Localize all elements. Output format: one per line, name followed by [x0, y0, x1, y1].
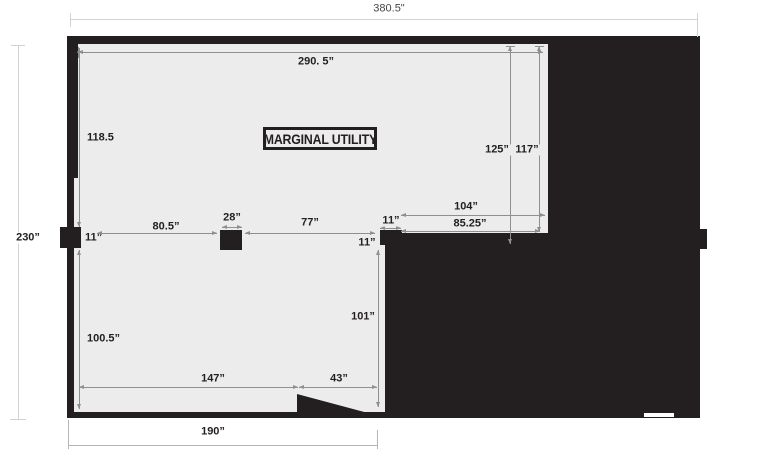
- dim-label-right-outer-height: 125”: [483, 145, 511, 156]
- dim-line-right-inner-height: [539, 46, 540, 232]
- room-fill-lower: [78, 233, 385, 412]
- dim-line-upper-left-height: [79, 48, 80, 227]
- dim-label-lower-right-height: 101”: [349, 312, 377, 323]
- dim-line-column-width: [222, 227, 242, 228]
- bottom-edge-notch: [644, 413, 674, 417]
- dim-tick-bottom-left: [68, 420, 69, 449]
- dim-label-overall-width: 380.5": [371, 4, 406, 15]
- dim-line-span-left: [97, 233, 217, 234]
- dim-tick-overall-left: [70, 13, 71, 27]
- dim-label-left-height: 230”: [14, 233, 42, 244]
- dim-tick-overall-right: [697, 13, 698, 37]
- dim-tick-height-bottom: [10, 419, 26, 420]
- dim-line-notch-width: [299, 387, 377, 388]
- corner-stub-wall: [380, 230, 402, 245]
- dim-label-column-width: 28”: [221, 213, 243, 224]
- dim-line-span-mid: [245, 233, 375, 234]
- dim-label-upper-left-height: 118.5: [85, 133, 116, 144]
- center-column-post: [220, 230, 242, 250]
- dim-line-right-opening: [401, 231, 540, 232]
- title-text: MARGINAL UTILITY: [263, 131, 376, 147]
- left-wall-post: [60, 227, 81, 248]
- dim-tick-bottom-right: [377, 430, 378, 449]
- dim-label-right-inner-height: 117”: [513, 145, 540, 156]
- dim-label-stub-width: 11”: [380, 216, 401, 227]
- right-wall-post: [695, 229, 707, 249]
- dim-line-right-width: [401, 215, 545, 216]
- dim-label-lower-left-height: 100.5”: [85, 334, 122, 345]
- dim-label-right-width: 104”: [452, 202, 480, 213]
- dim-line-span-lower: [79, 387, 298, 388]
- dim-tick-right-outer: [506, 46, 515, 47]
- dim-line-stub-width: [380, 228, 401, 229]
- dim-label-top-width: 290. 5”: [296, 57, 336, 68]
- floor-plan-canvas: MARGINAL UTILITY 380.5" 230” 290. 5” 118…: [0, 0, 768, 464]
- dim-line-bottom-width: [68, 445, 377, 446]
- dim-line-overall-width: [70, 19, 697, 20]
- dim-label-stub-height: 11”: [356, 238, 377, 249]
- dim-label-span-lower: 147”: [199, 374, 227, 385]
- dim-label-span-left: 80.5”: [151, 222, 182, 233]
- dim-label-notch-width: 43”: [328, 374, 350, 385]
- dim-tick-height-top: [11, 45, 25, 46]
- dim-label-span-mid: 77”: [299, 218, 321, 229]
- title-box: MARGINAL UTILITY: [263, 127, 377, 150]
- dim-line-top-width: [78, 52, 543, 53]
- dim-tick-right-inner: [535, 46, 544, 47]
- dim-line-lower-right-height: [378, 250, 379, 407]
- dim-label-right-opening: 85.25”: [451, 219, 488, 230]
- dim-label-bottom-width: 190”: [199, 427, 227, 438]
